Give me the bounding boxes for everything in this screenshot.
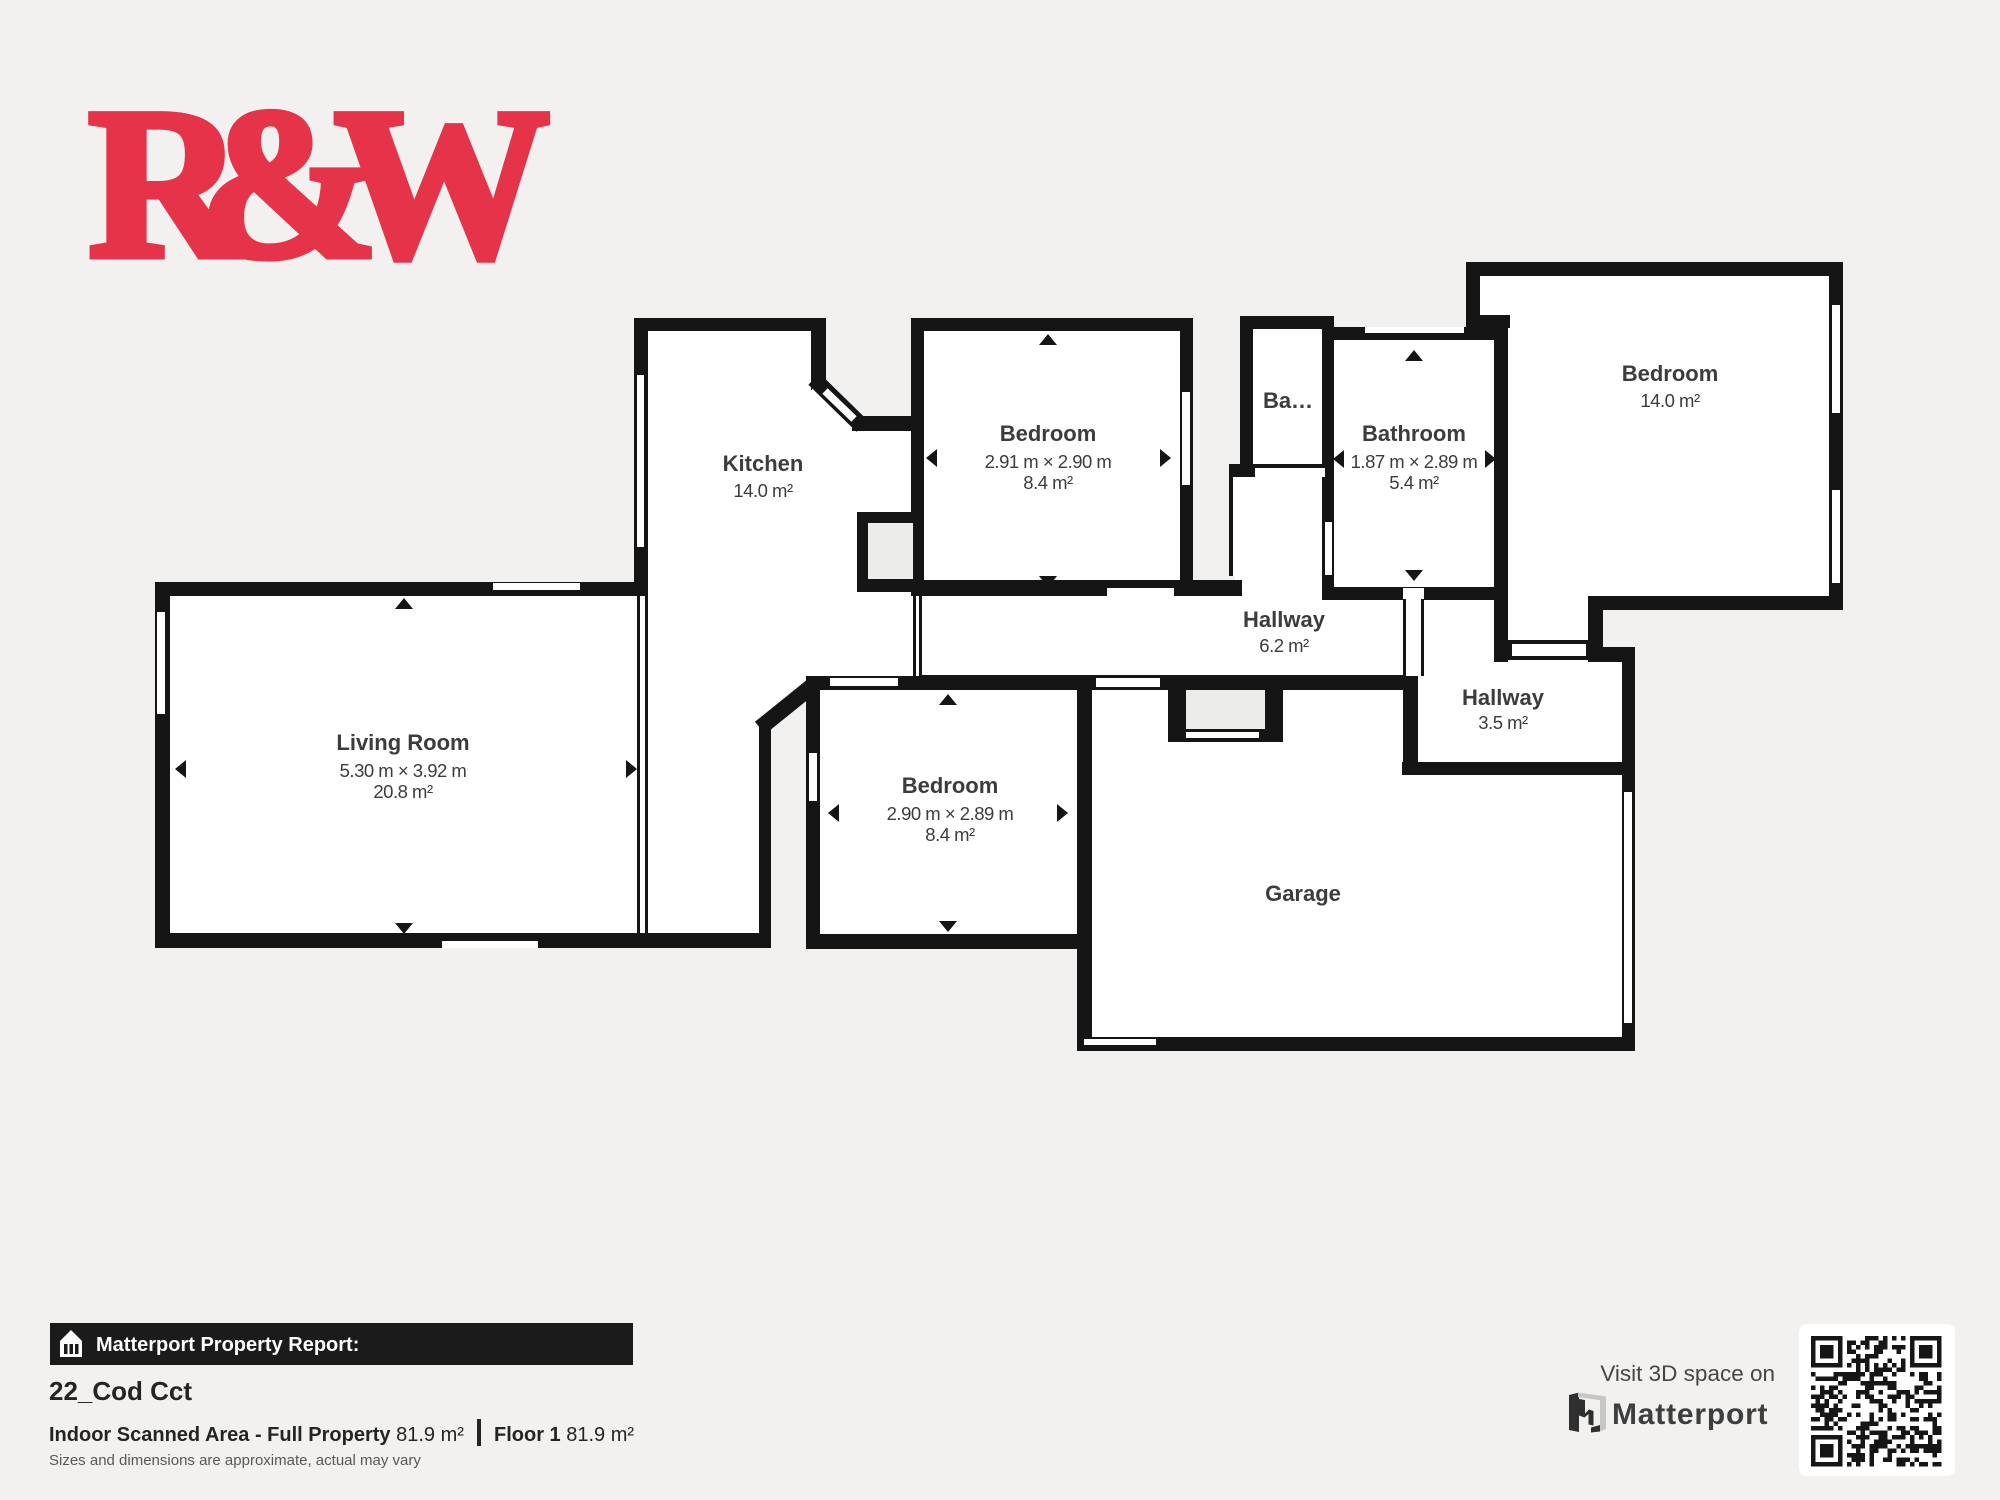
svg-text:Hallway: Hallway bbox=[1462, 685, 1545, 710]
svg-text:5.4 m²: 5.4 m² bbox=[1389, 472, 1439, 493]
svg-text:Matterport Property Report:: Matterport Property Report: bbox=[96, 1334, 359, 1356]
svg-text:Hallway: Hallway bbox=[1243, 607, 1326, 632]
svg-text:R&W: R&W bbox=[88, 64, 550, 303]
svg-text:5.30 m × 3.92 m: 5.30 m × 3.92 m bbox=[340, 760, 467, 781]
svg-text:Garage: Garage bbox=[1265, 881, 1341, 906]
svg-text:8.4 m²: 8.4 m² bbox=[1023, 472, 1073, 493]
svg-text:22_Cod Cct: 22_Cod Cct bbox=[49, 1376, 192, 1406]
svg-text:6.2 m²: 6.2 m² bbox=[1259, 635, 1309, 656]
svg-text:Visit 3D space on: Visit 3D space on bbox=[1600, 1361, 1775, 1386]
svg-text:Floor 1 81.9 m²: Floor 1 81.9 m² bbox=[494, 1424, 634, 1446]
svg-text:Matterport: Matterport bbox=[1612, 1398, 1768, 1431]
svg-text:Living Room: Living Room bbox=[336, 730, 469, 755]
svg-text:2.91 m × 2.90 m: 2.91 m × 2.90 m bbox=[985, 451, 1112, 472]
svg-text:Bedroom: Bedroom bbox=[1622, 361, 1719, 386]
svg-text:14.0 m²: 14.0 m² bbox=[1640, 390, 1700, 411]
svg-text:20.8 m²: 20.8 m² bbox=[373, 781, 433, 802]
svg-text:1.87 m × 2.89 m: 1.87 m × 2.89 m bbox=[1351, 451, 1478, 472]
svg-text:Ba…: Ba… bbox=[1263, 388, 1313, 413]
svg-text:Indoor Scanned Area - Full Pro: Indoor Scanned Area - Full Property 81.9… bbox=[49, 1424, 464, 1446]
svg-text:Bedroom: Bedroom bbox=[1000, 421, 1097, 446]
svg-text:Bathroom: Bathroom bbox=[1362, 421, 1466, 446]
svg-text:3.5 m²: 3.5 m² bbox=[1478, 712, 1528, 733]
svg-text:2.90 m × 2.89 m: 2.90 m × 2.89 m bbox=[887, 803, 1014, 824]
svg-text:Bedroom: Bedroom bbox=[902, 773, 999, 798]
svg-text:14.0 m²: 14.0 m² bbox=[733, 480, 793, 501]
svg-text:8.4 m²: 8.4 m² bbox=[925, 824, 975, 845]
svg-text:Sizes and dimensions are appro: Sizes and dimensions are approximate, ac… bbox=[49, 1452, 421, 1469]
svg-text:Kitchen: Kitchen bbox=[723, 451, 804, 476]
